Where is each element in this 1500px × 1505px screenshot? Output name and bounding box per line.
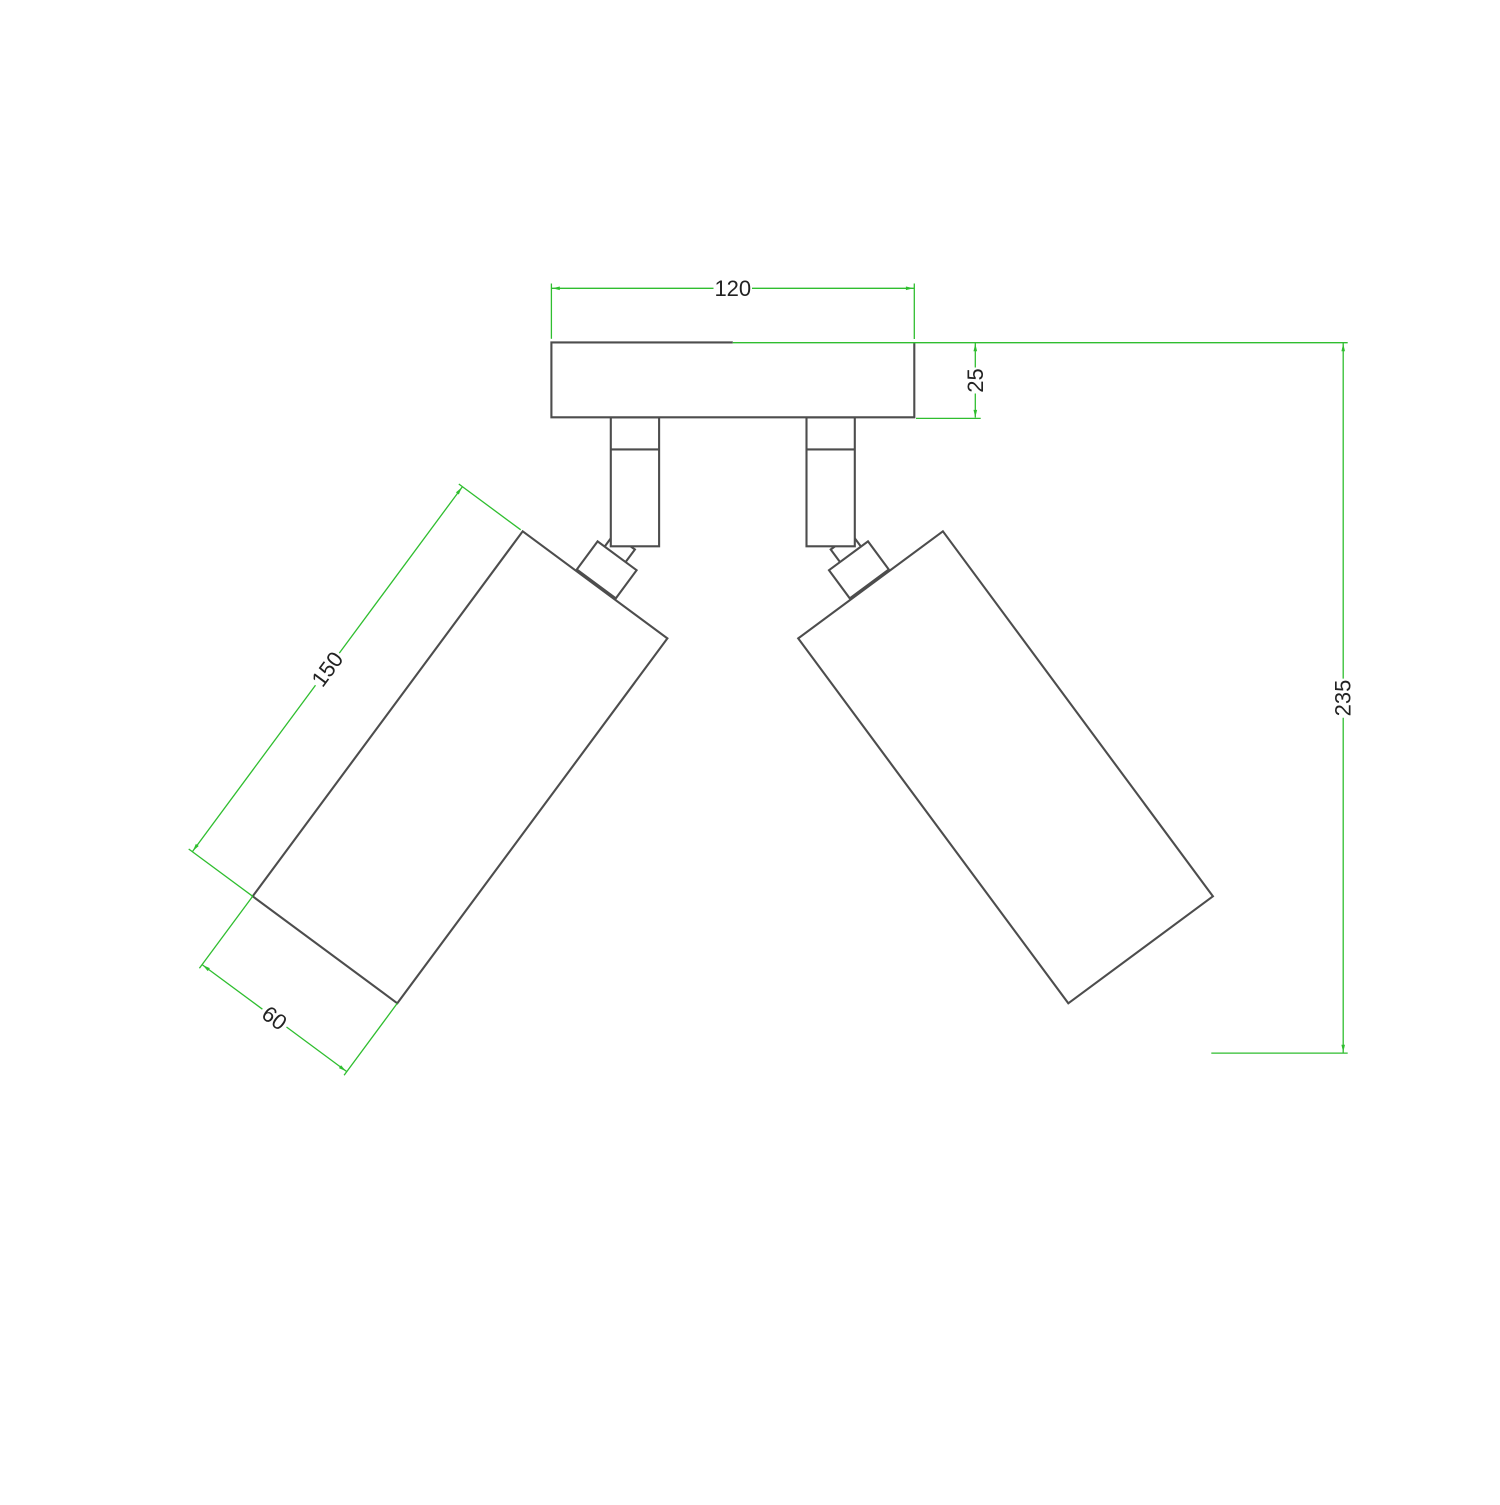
- svg-text:25: 25: [963, 368, 988, 392]
- svg-text:235: 235: [1331, 680, 1356, 717]
- svg-text:120: 120: [714, 276, 751, 301]
